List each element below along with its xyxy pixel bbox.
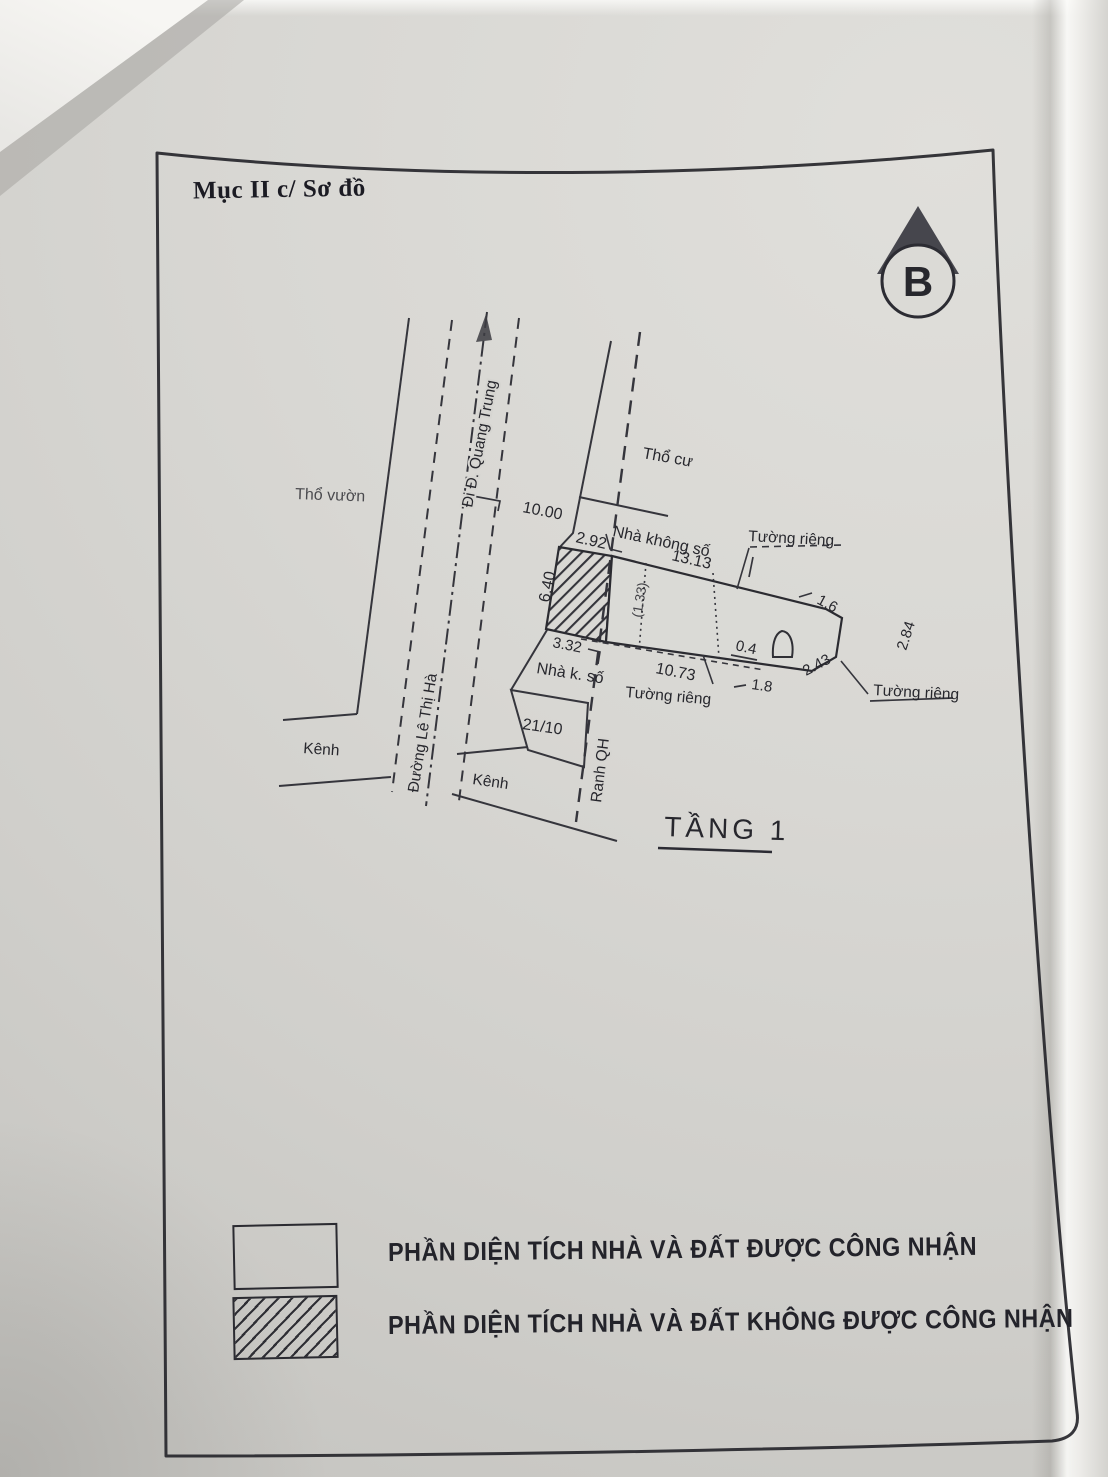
legend-label-recognized: PHẦN DIỆN TÍCH NHÀ VÀ ĐẤT ĐƯỢC CÔNG NHẬN xyxy=(388,1231,977,1268)
road-direction-arrow xyxy=(476,314,492,342)
label-canal-right: Kênh xyxy=(471,771,509,793)
label-garden-land: Thổ vườn xyxy=(295,485,366,505)
legend-swatch-not-recognized xyxy=(232,1295,338,1360)
label-canal-left: Kênh xyxy=(303,740,340,759)
label-residential-land: Thổ cư xyxy=(641,444,694,471)
private-wall-bottom-right-leader xyxy=(841,661,868,694)
north-arrow-letter: B xyxy=(903,258,933,305)
label-le-thi-ha-street: Đường Lê Thị Hà xyxy=(405,672,441,794)
dim-hatched-bottom: 3.32 xyxy=(551,634,583,656)
dim-house-bottom: 10.73 xyxy=(654,660,697,684)
canal-bank-upper-left xyxy=(283,714,357,720)
private-wall-top-leader xyxy=(737,548,749,589)
plot-west-boundary xyxy=(559,341,611,548)
private-wall-bottom-left-leader xyxy=(703,655,713,684)
dim-edge-2-84: 2.84 xyxy=(894,619,919,652)
label-private-wall-top: Tường riêng xyxy=(748,528,835,549)
label-private-wall-bottom-left: Tường riêng xyxy=(625,684,712,708)
dim-tick-1-8 xyxy=(734,685,746,687)
plot-north-boundary xyxy=(579,497,668,516)
floor-title: TẦNG 1 xyxy=(664,811,790,846)
scanned-page: Mục II c/ Sơ đồ B xyxy=(0,0,1108,1477)
legend-swatch-recognized xyxy=(232,1223,338,1290)
north-arrow-icon: B xyxy=(877,206,959,317)
hatched-not-recognized-area xyxy=(546,547,612,642)
floor-title-underline xyxy=(658,848,772,852)
label-house-no-number-left: Nhà k. số xyxy=(535,660,605,687)
house-shapes xyxy=(546,534,953,701)
label-to-quang-trung-road: Đi Đ. Quang Trung xyxy=(459,379,500,509)
dim-tick-1-6 xyxy=(799,593,812,597)
canal-bank-upper-right xyxy=(457,747,528,754)
dim-road-frontage: 10.00 xyxy=(521,499,564,523)
label-planning-boundary: Ranh QH xyxy=(588,737,613,803)
dim-tick-13-13 xyxy=(749,557,753,577)
canal-bank-lower-left xyxy=(279,777,391,786)
road-left-boundary xyxy=(357,318,409,714)
label-plot-number: 21/10 xyxy=(521,716,563,738)
dim-edge-1-8: 1.8 xyxy=(750,676,773,696)
road-centerline xyxy=(426,312,487,806)
